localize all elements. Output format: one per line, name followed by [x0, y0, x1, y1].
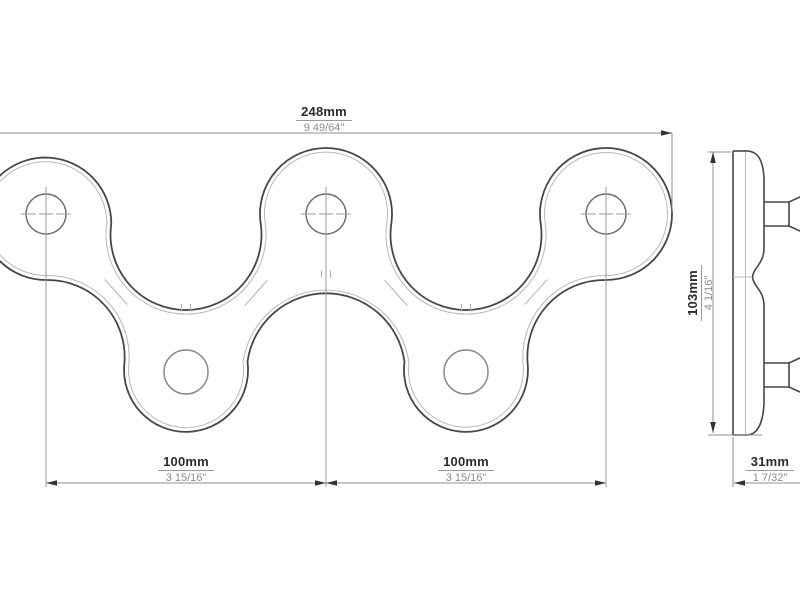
plate-outline — [0, 148, 672, 432]
dim-height-mm: 103mm — [686, 265, 702, 321]
top-peg — [764, 197, 800, 232]
dim-depth-label: 31mm 1 7/32" — [746, 454, 794, 484]
dim-spacing-left-label: 100mm 3 15/16" — [158, 454, 214, 484]
dim-height-label: 103mm 4 1/16" — [685, 265, 715, 321]
front-view — [0, 148, 672, 432]
side-front-silhouette — [748, 151, 764, 435]
dim-spacing-left-inch: 3 15/16" — [158, 471, 214, 484]
dim-depth-inch: 1 7/32" — [746, 471, 794, 484]
dim-height-inch: 4 1/16" — [702, 265, 715, 321]
bottom-peg — [764, 358, 800, 393]
drawing-canvas: 248mm 9 49/64" 100mm 3 15/16" 100mm 3 15… — [0, 0, 800, 600]
dim-total-width-mm: 248mm — [296, 105, 352, 121]
dim-depth-mm: 31mm — [746, 455, 794, 471]
dim-spacing-right-inch: 3 15/16" — [438, 471, 494, 484]
dim-spacing-right-label: 100mm 3 15/16" — [438, 454, 494, 484]
dim-spacing-right-mm: 100mm — [438, 455, 494, 471]
drawing-linework — [0, 0, 800, 600]
dim-spacing-left-mm: 100mm — [158, 455, 214, 471]
side-view — [733, 151, 800, 435]
dim-total-width-inch: 9 49/64" — [296, 121, 352, 134]
dim-total-width-label: 248mm 9 49/64" — [296, 104, 352, 134]
